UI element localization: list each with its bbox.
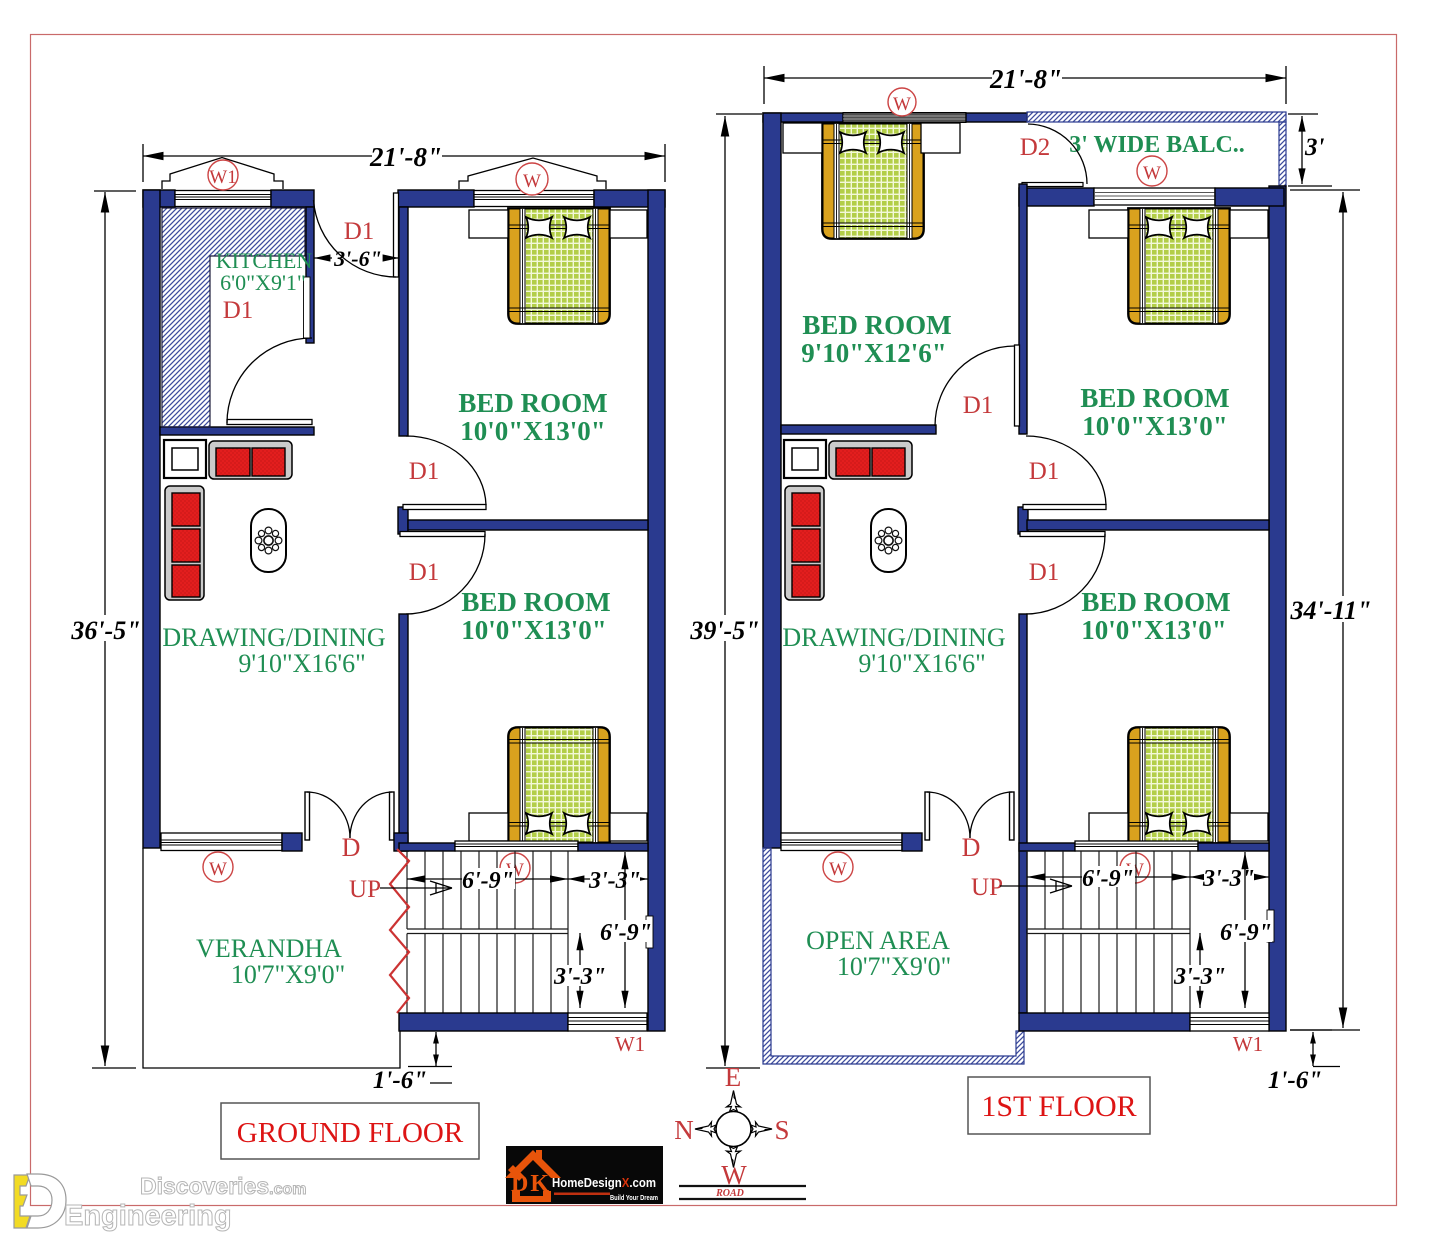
svg-text:D1: D1 [344,218,375,245]
svg-text:21'-8": 21'-8" [989,64,1062,94]
svg-text:10'0"X13'0": 10'0"X13'0" [460,416,605,446]
svg-text:W: W [893,94,911,115]
svg-text:DRAWING/DINING: DRAWING/DINING [782,623,1005,652]
svg-text:10'0"X13'0": 10'0"X13'0" [461,615,606,645]
svg-text:1'-6": 1'-6" [373,1067,427,1094]
svg-text:UP: UP [971,874,1003,901]
svg-text:21'-8": 21'-8" [369,142,442,172]
svg-text:BED ROOM: BED ROOM [461,587,610,617]
svg-text:E: E [725,1062,742,1092]
svg-text:D: D [962,833,981,862]
svg-text:9'10"X16'6": 9'10"X16'6" [858,649,985,678]
svg-text:39'-5": 39'-5" [689,616,759,645]
svg-text:9'10"X16'6": 9'10"X16'6" [238,649,365,678]
svg-text:9'10"X12'6": 9'10"X12'6" [801,338,946,368]
svg-text:D1: D1 [1029,559,1060,586]
svg-text:3'-3": 3'-3" [1202,866,1255,892]
svg-text:34'-11": 34'-11" [1290,596,1372,625]
svg-text:OPEN AREA: OPEN AREA [806,926,950,955]
svg-text:GROUND FLOOR: GROUND FLOOR [237,1117,464,1149]
svg-text:ROAD: ROAD [715,1188,744,1199]
svg-text:3'-3": 3'-3" [553,964,606,990]
svg-text:D1: D1 [1029,458,1060,485]
svg-text:N: N [674,1115,694,1145]
svg-text:3'-3": 3'-3" [588,868,641,894]
svg-text:W: W [523,171,541,192]
svg-text:D1: D1 [223,297,254,324]
svg-text:UP: UP [349,876,381,903]
svg-text:D2: D2 [1020,134,1051,161]
svg-text:BED ROOM: BED ROOM [802,310,951,340]
svg-text:BED ROOM: BED ROOM [458,388,607,418]
svg-text:6'0"X9'1": 6'0"X9'1" [220,270,306,295]
svg-text:3' WIDE BALC..: 3' WIDE BALC.. [1069,132,1245,158]
svg-text:W1: W1 [1233,1032,1263,1056]
svg-text:W: W [209,859,227,880]
svg-text:6'-9": 6'-9" [1220,920,1272,946]
svg-text:BED ROOM: BED ROOM [1081,587,1230,617]
svg-text:W1: W1 [615,1032,645,1056]
svg-text:36'-5": 36'-5" [70,616,140,645]
svg-text:10'7"X9'0": 10'7"X9'0" [837,952,951,981]
svg-text:D: D [342,833,361,862]
svg-text:W1: W1 [209,167,236,188]
svg-text:VERANDHA: VERANDHA [196,934,342,963]
svg-text:DRAWING/DINING: DRAWING/DINING [162,623,385,652]
svg-text:D1: D1 [409,559,440,586]
svg-text:D1: D1 [409,458,440,485]
svg-text:W: W [1143,163,1161,184]
svg-text:Engineering: Engineering [64,1200,232,1232]
svg-text:6'-9": 6'-9" [1082,866,1134,892]
svg-text:3'-6": 3'-6" [333,246,382,271]
svg-text:6'-9": 6'-9" [600,920,652,946]
svg-text:10'7"X9'0": 10'7"X9'0" [231,960,345,989]
svg-text:Build Your Dream: Build Your Dream [610,1193,658,1202]
svg-text:3'-3": 3'-3" [1173,964,1226,990]
svg-text:3': 3' [1304,134,1325,161]
svg-text:W: W [829,859,847,880]
svg-text:10'0"X13'0": 10'0"X13'0" [1082,411,1227,441]
svg-text:BED ROOM: BED ROOM [1080,383,1229,413]
svg-text:1ST FLOOR: 1ST FLOOR [981,1090,1136,1123]
svg-text:6'-9": 6'-9" [462,868,514,894]
svg-text:10'0"X13'0": 10'0"X13'0" [1081,615,1226,645]
svg-text:1'-6": 1'-6" [1268,1067,1322,1094]
svg-text:HomeDesignX.com: HomeDesignX.com [552,1175,656,1190]
svg-text:D1: D1 [963,392,994,419]
svg-text:S: S [774,1115,789,1145]
